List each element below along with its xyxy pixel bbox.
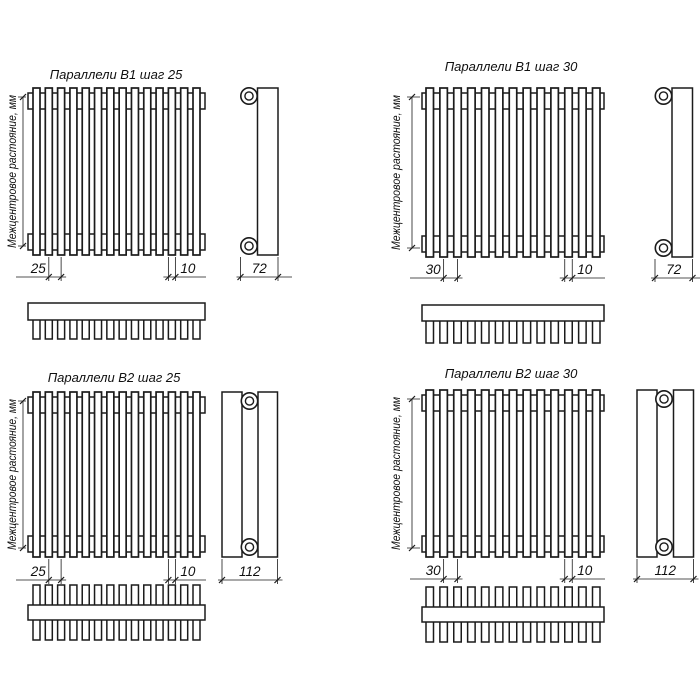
tube [495,390,503,557]
tube [495,88,503,257]
tube [70,88,77,255]
bottom-collector [28,536,205,552]
tube-top-view [426,587,434,609]
tube [156,392,163,557]
tube [107,392,114,557]
tube-top-view [509,319,517,343]
tube-top-view [565,587,573,609]
tube-top-view [537,620,545,642]
tube [440,390,448,557]
side-body-rear-row [674,390,694,557]
tube-top-view [45,618,52,640]
tube-top-view [579,587,587,609]
top-view-collector [28,303,205,320]
connection-port-bore-icon [660,543,668,551]
tube-top-view [193,618,200,640]
tube [482,88,490,257]
step-dimension: 25 [16,559,66,584]
tube-width-value: 10 [577,262,593,277]
tube [454,88,462,257]
tube-top-view [119,318,126,339]
side-view [637,390,694,557]
step-value: 25 [30,261,47,276]
tube-top-view [440,319,448,343]
tube-top-view [537,587,545,609]
tube-top-view [168,618,175,640]
tube-width-value: 10 [577,563,593,578]
step-value: 30 [426,563,442,578]
tube [144,88,151,255]
tube [565,88,573,257]
connection-port-bore-icon [245,543,253,551]
tube-top-view [495,620,503,642]
front-view [28,88,205,255]
tube-top-view [156,618,163,640]
tube-top-view [95,585,102,607]
center-distance-dimension: Межцентровое растояние, мм [7,94,26,249]
tube-top-view [551,587,559,609]
center-distance-dimension: Межцентровое растояние, мм [391,94,420,251]
tube-top-view [523,620,531,642]
tube-top-view [95,318,102,339]
tube-top-view [58,618,65,640]
top-view [422,587,604,642]
front-view [422,390,604,557]
tube-width-dimension: 10 [560,559,605,583]
connection-port-bore-icon [659,244,667,252]
tube-top-view [468,587,476,609]
tube [82,392,89,557]
tube [537,390,545,557]
tube [523,88,531,257]
tube [70,392,77,557]
top-collector [28,93,205,109]
step-dimension: 30 [410,259,463,282]
panel-b2-step-25: Параллели В2 шаг 25Межцентровое растояни… [0,350,350,700]
bottom-collector [28,234,205,250]
tube [551,390,559,557]
tube [565,390,573,557]
tube-top-view [482,620,490,642]
tube-top-view [33,618,40,640]
side-body [258,88,279,255]
tube [58,392,65,557]
tube [168,392,175,557]
tube-top-view [58,318,65,339]
front-view [422,88,604,257]
tube [33,88,40,255]
depth-dimension: 112 [633,559,699,583]
tube-top-view [537,319,545,343]
tube [579,390,587,557]
panel-title: Параллели В2 шаг 30 [445,366,578,381]
tube-top-view [495,587,503,609]
tube [95,88,102,255]
tube [107,88,114,255]
tube [156,88,163,255]
tube [426,88,434,257]
tube-width-dimension: 10 [560,259,605,282]
top-view [28,303,205,339]
tube-top-view [426,620,434,642]
tube [193,392,200,557]
top-view-collector [28,605,205,620]
tube-top-view [181,585,188,607]
tube-top-view [156,585,163,607]
panel-title: Параллели В1 шаг 30 [445,59,578,74]
tube-width-dimension: 10 [163,257,206,281]
tube-top-view [107,618,114,640]
side-body [672,88,693,257]
connection-port-bore-icon [245,92,253,100]
center-distance-dimension: Межцентровое растояние, мм [391,396,420,551]
tube [181,88,188,255]
vertical-axis-label: Межцентровое растояние, мм [391,397,403,550]
tube-top-view [168,585,175,607]
tube [537,88,545,257]
tube [144,392,151,557]
tube [181,392,188,557]
tube-top-view [70,618,77,640]
tube-top-view [82,318,89,339]
connection-port-bore-icon [659,92,667,100]
tube-top-view [168,318,175,339]
tube [131,392,138,557]
connection-port-bore-icon [245,397,253,405]
tube [193,88,200,255]
tube [509,88,517,257]
step-value: 30 [426,262,442,277]
depth-value: 72 [666,262,682,277]
tube-top-view [593,587,601,609]
tube-top-view [440,620,448,642]
panel-title: Параллели В2 шаг 25 [48,370,181,385]
tube-top-view [45,318,52,339]
connection-port-bore-icon [245,242,253,250]
tube [482,390,490,557]
vertical-axis-label: Межцентровое растояние, мм [7,399,19,550]
tube-top-view [70,318,77,339]
tube-top-view [565,620,573,642]
side-body-front-row [222,392,242,557]
tube-top-view [495,319,503,343]
tube-top-view [82,618,89,640]
tube-top-view [181,318,188,339]
step-dimension: 30 [410,559,463,583]
tube [82,88,89,255]
tube-top-view [579,620,587,642]
tube-top-view [181,618,188,640]
tube-top-view [509,620,517,642]
tube [551,88,559,257]
tube-top-view [107,585,114,607]
tube-top-view [551,620,559,642]
tube-top-view [593,319,601,343]
tube-top-view [119,585,126,607]
vertical-axis-label: Межцентровое растояние, мм [7,95,19,248]
tube-top-view [156,318,163,339]
front-view [28,392,205,557]
tube-top-view [523,587,531,609]
tube [440,88,448,257]
tube-top-view [440,587,448,609]
depth-dimension: 72 [237,257,293,281]
side-view [222,392,278,557]
side-body-rear-row [258,392,278,557]
tube [131,88,138,255]
tube-top-view [454,587,462,609]
tube [119,88,126,255]
top-collector [28,397,205,413]
tube [579,88,587,257]
tube-top-view [593,620,601,642]
step-dimension: 25 [16,257,66,281]
tube-top-view [95,618,102,640]
tube-top-view [33,585,40,607]
tube-top-view [70,585,77,607]
depth-value: 112 [654,563,676,578]
tube-top-view [193,585,200,607]
tube [58,88,65,255]
tube-top-view [193,318,200,339]
tube-top-view [482,319,490,343]
tube-width-value: 10 [180,261,196,276]
tube [168,88,175,255]
panel-b2-step-30: Параллели В2 шаг 30Межцентровое растояни… [350,350,700,700]
step-value: 25 [30,564,47,579]
side-view [655,88,692,257]
tube [468,390,476,557]
tube-top-view [482,587,490,609]
top-view-collector [422,305,604,321]
tube [523,390,531,557]
panel-title: Параллели В1 шаг 25 [50,67,183,82]
connection-port-bore-icon [660,395,668,403]
tube [119,392,126,557]
tube-top-view [454,620,462,642]
tube-top-view [131,318,138,339]
vertical-axis-label: Межцентровое растояние, мм [391,95,403,250]
tube [426,390,434,557]
tube-top-view [107,318,114,339]
top-view-collector [422,607,604,622]
tube-top-view [468,620,476,642]
tube [468,88,476,257]
drawing-sheet: Параллели В1 шаг 25Межцентровое растояни… [0,0,700,700]
tube-top-view [426,319,434,343]
top-view [28,585,205,640]
tube [45,392,52,557]
tube-top-view [82,585,89,607]
depth-dimension: 72 [651,259,700,282]
tube [509,390,517,557]
tube-top-view [131,585,138,607]
tube-top-view [579,319,587,343]
tube-top-view [468,319,476,343]
tube-width-value: 10 [180,564,196,579]
side-body-front-row [637,390,657,557]
tube [593,88,601,257]
panel-b1-step-25: Параллели В1 шаг 25Межцентровое растояни… [0,0,350,350]
tube [95,392,102,557]
center-distance-dimension: Межцентровое растояние, мм [7,398,26,551]
tube-top-view [33,318,40,339]
tube-top-view [45,585,52,607]
tube-top-view [565,319,573,343]
tube [33,392,40,557]
tube-top-view [119,618,126,640]
tube-top-view [144,585,151,607]
side-view [241,88,278,255]
tube-top-view [454,319,462,343]
tube-top-view [551,319,559,343]
tube-top-view [144,318,151,339]
depth-dimension: 112 [218,559,283,584]
tube-top-view [58,585,65,607]
panel-b1-step-30: Параллели В1 шаг 30Межцентровое растояни… [350,0,700,350]
tube [454,390,462,557]
tube-top-view [509,587,517,609]
top-view [422,305,604,343]
tube [45,88,52,255]
tube-top-view [144,618,151,640]
depth-value: 112 [239,564,261,579]
tube [593,390,601,557]
tube-top-view [523,319,531,343]
tube-top-view [131,618,138,640]
tube-width-dimension: 10 [163,559,206,584]
depth-value: 72 [252,261,268,276]
